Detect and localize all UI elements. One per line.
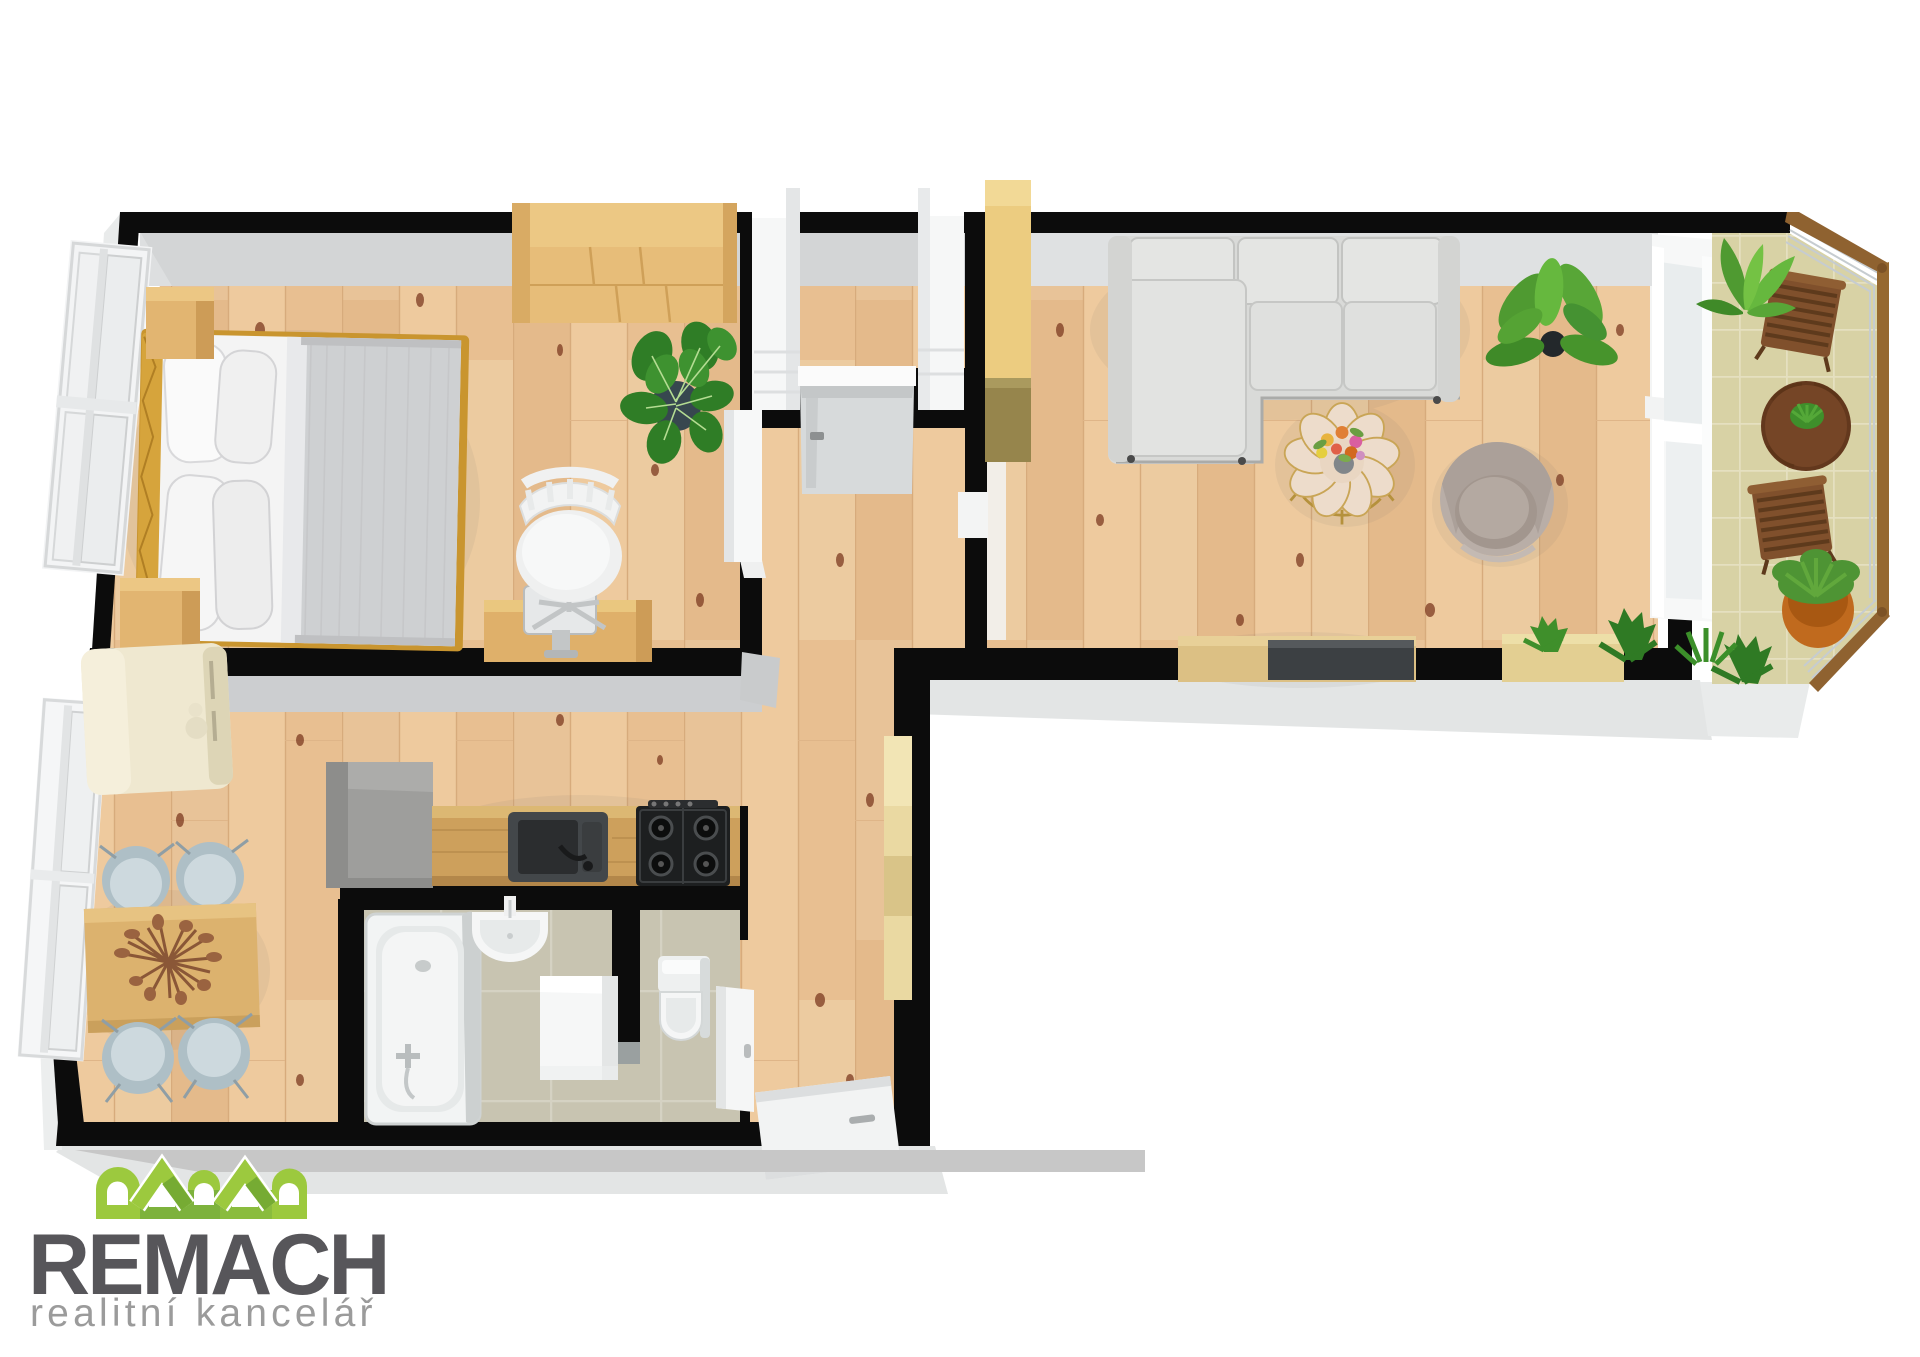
- svg-text:realitní kancelář: realitní kancelář: [30, 1292, 377, 1335]
